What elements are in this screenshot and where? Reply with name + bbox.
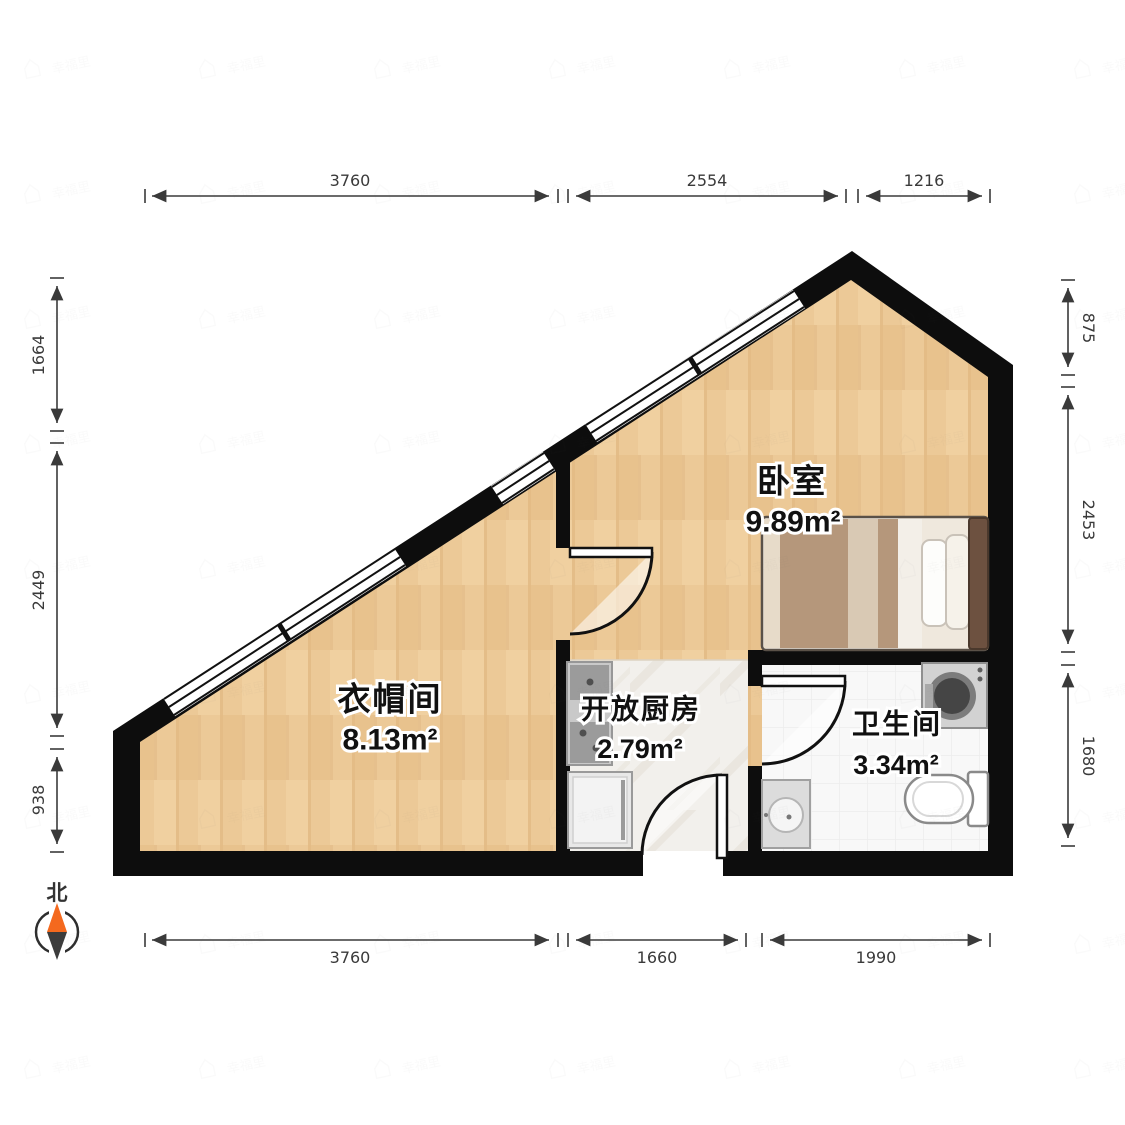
toilet <box>905 772 988 826</box>
bathroom-sink <box>762 780 810 848</box>
sink-basin <box>769 798 803 832</box>
dim-top-2: 2554 <box>687 171 728 190</box>
dim-right-3: 1680 <box>1079 736 1098 777</box>
dim-top-3: 1216 <box>904 171 945 190</box>
wall-cloakroom-upper <box>556 450 570 548</box>
dim-bottom-3: 1990 <box>856 948 897 967</box>
floorplan-canvas: ⌂ 幸福里 <box>0 0 1125 1125</box>
pillow <box>946 535 969 629</box>
room-area-kitchen: 2.79m² <box>597 734 683 764</box>
dim-left-3: 938 <box>29 785 48 816</box>
fridge <box>568 772 632 848</box>
dim-right-2: 2453 <box>1079 500 1098 541</box>
room-area-bathroom: 3.34m² <box>853 750 939 780</box>
compass-needle-north <box>47 903 67 932</box>
room-label-bedroom: 卧室 <box>757 463 827 500</box>
dim-top-1: 3760 <box>330 171 371 190</box>
room-area-bedroom: 9.89m² <box>745 506 840 539</box>
dim-bottom-2: 1660 <box>637 948 678 967</box>
north-compass: 北 <box>36 882 78 960</box>
bed-blanket-stripe <box>848 519 878 648</box>
room-area-cloakroom: 8.13m² <box>342 724 437 757</box>
room-label-kitchen: 开放厨房 <box>581 693 701 725</box>
room-label-cloakroom: 衣帽间 <box>338 681 443 718</box>
dim-bottom-1: 3760 <box>330 948 371 967</box>
bed-sheet <box>898 519 922 648</box>
pillow <box>922 540 947 626</box>
bed-headboard <box>969 518 988 649</box>
north-label: 北 <box>47 882 68 905</box>
dim-right-1: 875 <box>1079 313 1098 344</box>
bed-blanket-stripe <box>878 519 898 648</box>
fridge-handle <box>621 780 625 840</box>
sink-faucet <box>764 813 768 817</box>
room-label-bathroom: 卫生间 <box>852 709 942 740</box>
floorplan-page: ⌂ 幸福里 <box>0 0 1125 1125</box>
washer-panel <box>925 684 933 708</box>
dim-left-2: 2449 <box>29 570 48 611</box>
wall-bathroom-lower <box>748 766 762 851</box>
dim-left-1: 1664 <box>29 335 48 376</box>
wall-bathroom-upper <box>748 650 762 686</box>
